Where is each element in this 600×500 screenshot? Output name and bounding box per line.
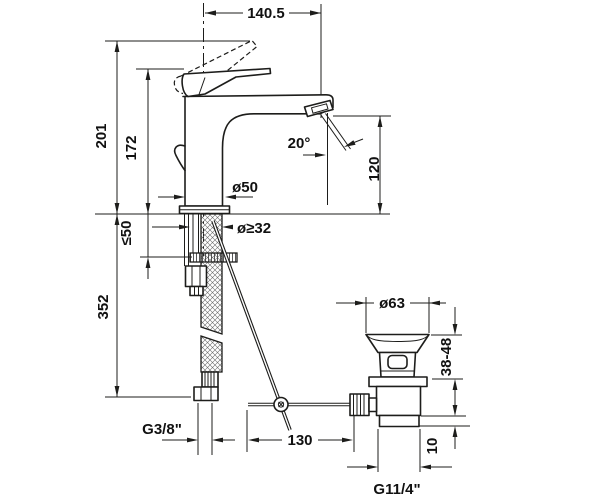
dim-waste-flange: ø63 — [336, 295, 446, 333]
dim-deck-max-label: ≤50 — [118, 221, 135, 246]
dim-waste-flange-label: ø63 — [379, 295, 405, 312]
dim-waste-step: 10 — [419, 426, 470, 454]
dim-hose-length-label: 352 — [95, 294, 112, 319]
dim-reach-label: 140.5 — [247, 5, 285, 22]
hose-end-fitting — [194, 372, 218, 401]
extension-lines — [95, 3, 391, 397]
waste-tailpiece — [380, 416, 420, 427]
rod-connection-nut — [350, 394, 377, 416]
dim-rod-reach-label: 130 — [287, 432, 312, 449]
arrowhead — [310, 10, 321, 15]
dim-hole-min-label: ø≥32 — [237, 220, 271, 237]
dim-spout-clearance-label: 120 — [366, 156, 383, 181]
dim-stream-angle-label: 20° — [288, 135, 311, 152]
mounting-nut — [186, 266, 207, 296]
dim-height-lever-label: 172 — [123, 135, 140, 160]
mounting-shank — [193, 214, 199, 253]
waste-flange — [366, 335, 429, 353]
faucet-body — [174, 41, 350, 214]
installation-parts — [185, 214, 351, 430]
horseshoe-washer — [190, 253, 237, 262]
lift-rod-knob — [175, 145, 185, 170]
water-stream — [321, 114, 351, 151]
dim-stream-angle: 20° — [288, 113, 363, 205]
dim-height-total-label: 201 — [93, 123, 110, 148]
pivot-joint — [274, 398, 288, 412]
dim-mount-range: 38-48 — [421, 307, 466, 416]
lift-rod — [185, 214, 189, 266]
dim-hose-length: 352 — [95, 214, 119, 397]
dim-waste-thread-label: G11/4" — [373, 481, 420, 498]
dim-inlet-thread-label: G3/8" — [142, 421, 182, 438]
dim-waste-step-label: 10 — [424, 438, 441, 455]
waste-collar — [369, 377, 427, 387]
overflow-hole — [388, 356, 407, 369]
dim-deck-max: ≤50 — [118, 214, 150, 279]
dim-mount-range-label: 38-48 — [438, 338, 455, 376]
dim-height-lever: 172 — [123, 69, 150, 214]
dim-spout-clearance: 120 — [366, 116, 383, 214]
dim-inlet-thread: G3/8" — [142, 403, 235, 455]
base-plate — [180, 206, 230, 214]
dim-height-total: 201 — [93, 41, 119, 214]
dim-reach: 140.5 — [205, 5, 321, 22]
dim-rod-reach: 130 — [247, 410, 354, 452]
handle-lever — [182, 69, 270, 97]
waste-upper-body — [380, 353, 416, 378]
arrowhead — [205, 10, 216, 15]
drawing-canvas: 140.5 201 172 ≤50 352 120 ø50 — [0, 0, 600, 500]
drain-assembly — [350, 335, 429, 427]
faucet-technical-drawing: 140.5 201 172 ≤50 352 120 ø50 — [0, 0, 600, 500]
dim-body-diameter-label: ø50 — [232, 179, 258, 196]
waste-lower-body — [377, 387, 421, 416]
